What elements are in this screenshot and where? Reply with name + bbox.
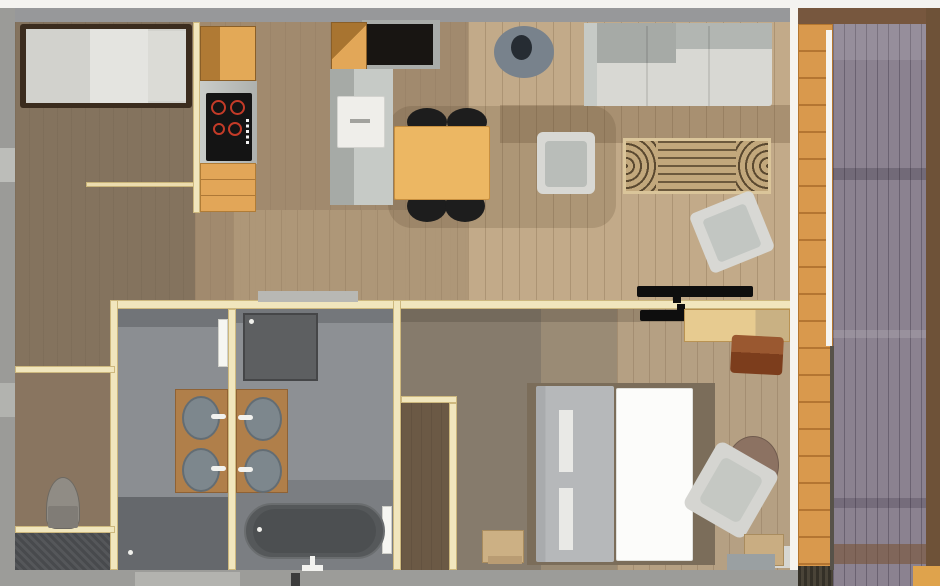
corridor-floor [401, 403, 449, 570]
wall-living-bedroom [112, 300, 795, 309]
bed-gray-runner-1 [559, 410, 573, 472]
counter-top-dark [367, 24, 433, 65]
wall-hall-wc [15, 366, 115, 373]
rug-fan-pattern-left [626, 141, 656, 191]
wall-bathroom-bedroom [393, 300, 401, 570]
decking-band-2 [833, 330, 926, 338]
toilet-tank [48, 506, 78, 528]
kitchen-lower-cabinet [200, 163, 256, 212]
kitchen-wall-strip [193, 22, 200, 213]
decking-band-1 [833, 168, 926, 180]
bed-single-gray [536, 386, 614, 562]
desk-chair [730, 335, 784, 376]
bed-single-white [616, 388, 693, 561]
kitchen-upper-cabinet [200, 26, 256, 81]
sofa-cushion-line-1 [646, 26, 648, 106]
tv-living-mount [673, 296, 681, 303]
balcony-wall-white [790, 8, 798, 570]
storage-box-gray [727, 554, 775, 570]
island-sink-faucet [350, 119, 370, 123]
sideboard [258, 291, 358, 302]
bathroom1-door [218, 319, 228, 367]
shower-tray [243, 313, 318, 381]
rug-line-pattern-center [658, 141, 736, 191]
dining-table [394, 126, 490, 200]
sofa-backrest-left [584, 23, 676, 63]
vanity-1-faucet-b [211, 466, 226, 471]
outer-wall-left-patch-lower [0, 383, 15, 417]
decking-brown-band [833, 544, 926, 564]
double-bed-pillow [148, 31, 186, 101]
double-bed-duvet [90, 29, 148, 103]
bathtub-drain [257, 527, 262, 532]
shower-drain [249, 319, 254, 324]
cooktop-burner-2 [230, 100, 245, 115]
bathroom1-shower-area [118, 497, 228, 570]
storage-niche-floor [15, 533, 110, 570]
outer-wall-left-patch-upper [0, 148, 15, 182]
decking-band-3 [833, 498, 926, 508]
nightstand-1-drawer [488, 556, 522, 564]
bathroom1-top-shade [118, 309, 228, 327]
outer-wall-bottom [0, 570, 798, 586]
balcony-corner-orange [913, 566, 940, 586]
decking-divider [830, 346, 834, 570]
vanity-2-faucet-b [238, 467, 253, 472]
balcony-door-opening [826, 30, 832, 346]
wall-corridor-right [449, 403, 457, 570]
floor-vase-opening [511, 35, 532, 60]
entry-door-mark [291, 573, 300, 586]
wall-bathrooms-divider [228, 309, 236, 570]
vanity-2-faucet-a [238, 415, 253, 420]
bathtub-inner [253, 509, 376, 553]
balcony-walkway-end [798, 566, 833, 586]
outer-wall-left [0, 8, 15, 586]
sofa-armrest-left [584, 23, 597, 106]
rug-fan-pattern-right [736, 141, 768, 191]
wall-corridor-top [401, 396, 457, 403]
outer-wall-bottom-patch [135, 572, 240, 586]
decking-section-top [833, 24, 926, 60]
balcony-top-band [798, 8, 940, 24]
floorplan-canvas [0, 0, 940, 586]
bedroom1-door-leaf [86, 182, 196, 187]
tv-living [637, 286, 753, 297]
counter-cabinet-orange [331, 22, 367, 71]
cooktop-burner-3 [213, 123, 225, 135]
cooktop-burner-4 [228, 122, 242, 136]
vanity-1-faucet-a [211, 414, 226, 419]
bathroom1-drain [128, 550, 133, 555]
cooktop-burner-1 [211, 100, 226, 115]
balcony-edge-brown [926, 8, 940, 586]
bed-gray-runner-2 [559, 488, 573, 550]
bathtub-faucet-bar [302, 565, 323, 571]
sofa-cushion-line-2 [708, 26, 710, 106]
armchair-1-seat [545, 141, 587, 187]
cooktop-knobs [246, 119, 249, 144]
